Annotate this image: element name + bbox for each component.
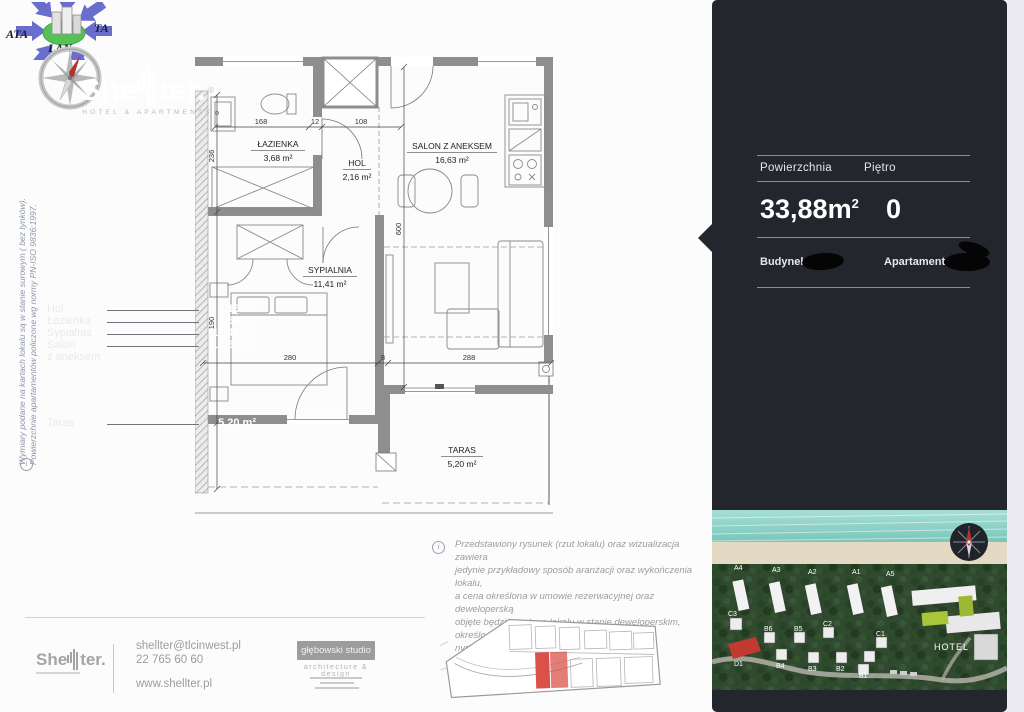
row-label: Łazienka (47, 315, 91, 327)
brand-tagline: HOTEL & APARTMENTS (0, 109, 295, 116)
brochure-page: ATA TA LAN Wymiary podane na kartach lok… (0, 0, 1024, 712)
svg-text:5,20 m²: 5,20 m² (448, 459, 477, 469)
brand-left: She (81, 76, 138, 106)
info-icon: i (432, 541, 445, 554)
floor-plan: 168 12 108 280 8 288 236 190 600 ŁAZIENK… (195, 55, 560, 520)
page-edge-stripe (1007, 0, 1024, 712)
studio-badge: głębowski studio (297, 641, 375, 660)
fine-print-line (310, 677, 362, 679)
footer-phone: 22 765 60 60 (136, 654, 203, 666)
disclaimer-line: Przedstawiony rysunek (rzut lokalu) oraz… (455, 538, 705, 564)
footer-brand-left: She (36, 650, 67, 670)
panel-brand-logo: Sheter. ® HOTEL & APARTMENTS (0, 66, 295, 116)
kitchen-fixtures (505, 95, 545, 187)
footer-brand-logo: Sheter. (36, 648, 106, 674)
row-value: 16,63 m² (178, 339, 256, 351)
walls (195, 57, 553, 454)
shaft (323, 58, 377, 107)
svg-text:B5: B5 (794, 626, 803, 633)
area-header: Powierzchnia (760, 162, 832, 174)
panel-rule (757, 181, 970, 182)
svg-text:288: 288 (463, 353, 476, 362)
svg-text:A5: A5 (886, 571, 895, 578)
svg-text:B1: B1 (859, 673, 868, 680)
svg-text:A4: A4 (734, 565, 743, 572)
brand-right: ter. (159, 76, 206, 106)
floor-header: Piętro (864, 162, 896, 174)
footer-brand-right: ter. (80, 650, 106, 670)
salon-furniture (386, 169, 543, 349)
info-icon: i (20, 458, 33, 471)
studio-subtitle: architecture & design (288, 664, 384, 678)
svg-text:C1: C1 (876, 631, 885, 638)
row-value: 3,68 m² (178, 315, 256, 327)
panel-rule (757, 237, 970, 238)
footer-email: shellter@tlcinwest.pl (136, 640, 241, 652)
row-value: 2,16 m² (178, 303, 256, 315)
buildings-icon (52, 7, 81, 34)
area-value: 33,88m2 (760, 194, 859, 225)
svg-text:D1: D1 (734, 661, 743, 668)
svg-text:B4: B4 (776, 663, 785, 670)
svg-text:A2: A2 (808, 569, 817, 576)
key-plan (440, 602, 665, 702)
shellter-bars-icon (67, 648, 80, 670)
shellter-bars-icon (137, 66, 159, 106)
svg-text:12: 12 (311, 117, 319, 126)
svg-text:3,68 m²: 3,68 m² (264, 153, 293, 163)
watermark-text: ATA (5, 27, 28, 41)
side-note-vertical: Wymiary podane na kartach lokalu są w st… (17, 165, 47, 465)
disclaimer-line: jedynie przykładowy sposób aranżacji ora… (455, 564, 705, 590)
registered-mark: ® (208, 76, 214, 106)
svg-text:2,16 m²: 2,16 m² (343, 172, 372, 182)
footer-brand-tagline (36, 672, 80, 674)
svg-text:B2: B2 (836, 666, 845, 673)
row-label: Taras (47, 417, 74, 429)
row-value: 5,20 m² (178, 417, 256, 429)
svg-text:280: 280 (284, 353, 297, 362)
svg-text:B3: B3 (808, 666, 817, 673)
row-label: Sypialnia (47, 327, 92, 339)
fine-print-line (315, 687, 359, 689)
svg-text:108: 108 (355, 117, 368, 126)
svg-text:C2: C2 (823, 621, 832, 628)
svg-text:600: 600 (394, 223, 403, 236)
panel-rule (757, 155, 970, 156)
side-note-line1: Wymiary podane na kartach lokalu są w st… (17, 165, 28, 465)
svg-text:B6: B6 (764, 626, 773, 633)
footer-divider (25, 617, 425, 618)
svg-text:16,63 m²: 16,63 m² (435, 155, 469, 165)
svg-text:236: 236 (207, 150, 216, 163)
svg-text:11,41 m²: 11,41 m² (314, 279, 347, 289)
row-value: 11,41 m² (178, 327, 256, 339)
highlighted-unit (535, 652, 550, 688)
side-note-line2: Powierzchnie apartamentów policzone wg n… (28, 165, 39, 465)
svg-text:A1: A1 (852, 569, 861, 576)
floor-value: 0 (886, 194, 901, 225)
svg-text:ŁAZIENKA: ŁAZIENKA (257, 139, 298, 149)
row-label-cont: z aneksem (47, 351, 100, 363)
svg-text:C3: C3 (728, 611, 737, 618)
svg-text:168: 168 (255, 117, 268, 126)
svg-text:8: 8 (381, 353, 385, 362)
panel-notch (698, 223, 713, 253)
apartment-label: Apartament: (884, 256, 949, 268)
footer-vertical-divider (113, 644, 114, 693)
svg-text:TARAS: TARAS (448, 445, 476, 455)
watermark-text: TA (94, 21, 109, 35)
row-label: Salon (47, 339, 75, 351)
svg-text:A3: A3 (772, 567, 781, 574)
footer-website: www.shellter.pl (136, 678, 212, 690)
panel-rule (757, 287, 970, 288)
photo-compass-icon (950, 523, 988, 561)
svg-text:SYPIALNIA: SYPIALNIA (308, 265, 352, 275)
fine-print-line (320, 682, 354, 684)
aerial-site-photo: A4 A3 A2 A1 A5 C3 B6 B5 C2 C1 D1 B4 B3 B… (712, 510, 1007, 690)
hotel-label: HOTEL (934, 642, 969, 652)
row-label: Hol (47, 303, 64, 315)
svg-text:HOL: HOL (348, 158, 366, 168)
svg-text:SALON Z ANEKSEM: SALON Z ANEKSEM (412, 141, 492, 151)
